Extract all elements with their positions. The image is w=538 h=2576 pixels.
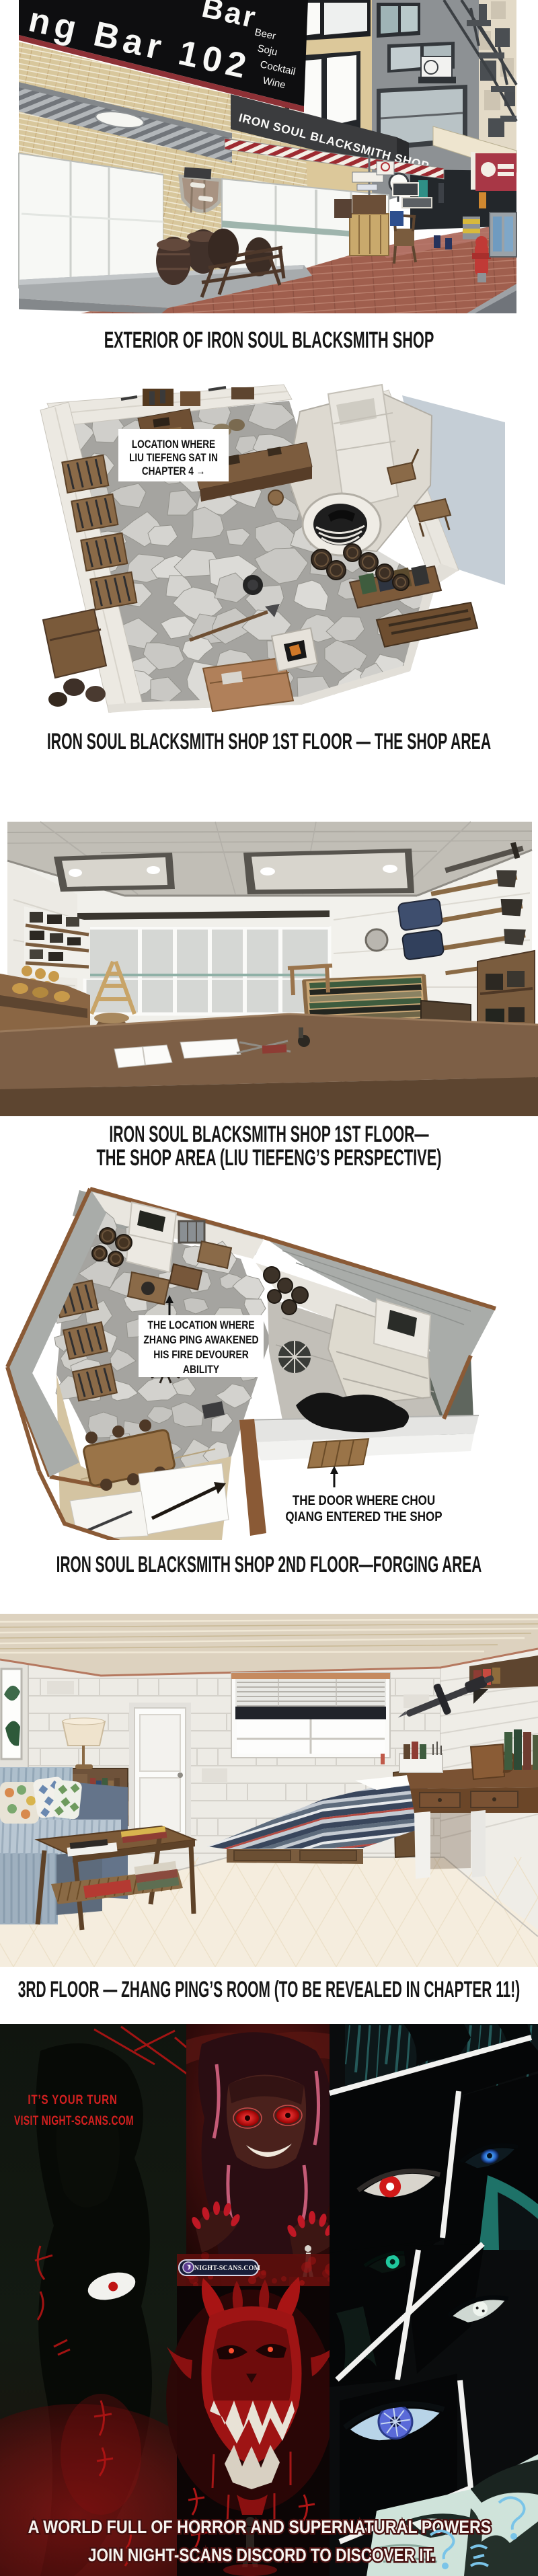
svg-text:VISIT NIGHT-SCANS.COM: VISIT NIGHT-SCANS.COM (14, 2113, 134, 2128)
svg-text:THE SHOP AREA (LIU TIEFENG’S P: THE SHOP AREA (LIU TIEFENG’S PERSPECTIVE… (96, 1145, 441, 1171)
svg-text:LIU TIEFENG SAT IN: LIU TIEFENG SAT IN (129, 452, 218, 465)
svg-text:THE LOCATION WHERE: THE LOCATION WHERE (147, 1319, 254, 1332)
svg-text:ABILITY: ABILITY (183, 1364, 220, 1376)
svg-text:IT’S YOUR TURN: IT’S YOUR TURN (28, 2092, 117, 2107)
svg-text:LOCATION WHERE: LOCATION WHERE (132, 438, 215, 451)
svg-text:IRON SOUL BLACKSMITH SHOP 1ST: IRON SOUL BLACKSMITH SHOP 1ST FLOOR— (109, 1123, 429, 1147)
svg-text:IRON SOUL BLACKSMITH SHOP 2ND: IRON SOUL BLACKSMITH SHOP 2ND FLOOR—FORG… (56, 1553, 482, 1577)
svg-text:QIANG ENTERED THE SHOP: QIANG ENTERED THE SHOP (285, 1509, 442, 1524)
svg-text:3RD FLOOR — ZHANG PING’S ROOM: 3RD FLOOR — ZHANG PING’S ROOM (TO BE REV… (18, 1978, 520, 2002)
svg-text:IRON SOUL BLACKSMITH SHOP 1ST: IRON SOUL BLACKSMITH SHOP 1ST FLOOR — TH… (47, 730, 491, 754)
svg-text:JOIN NIGHT-SCANS DISCORD TO DI: JOIN NIGHT-SCANS DISCORD TO DISCOVER IT. (88, 2545, 435, 2565)
svg-text:THE DOOR WHERE CHOU: THE DOOR WHERE CHOU (293, 1493, 435, 1508)
svg-text:ZHANG PING AWAKENED: ZHANG PING AWAKENED (143, 1334, 258, 1347)
svg-text:CHAPTER 4 →: CHAPTER 4 → (142, 465, 205, 478)
svg-text:NIGHT-SCANS.COM: NIGHT-SCANS.COM (194, 2265, 261, 2272)
svg-text:A WORLD FULL OF HORROR AND SUP: A WORLD FULL OF HORROR AND SUPERNATURAL … (28, 2517, 492, 2537)
svg-text:HIS FIRE DEVOURER: HIS FIRE DEVOURER (153, 1349, 249, 1362)
svg-text:EXTERIOR OF IRON SOUL BLACKSMI: EXTERIOR OF IRON SOUL BLACKSMITH SHOP (104, 329, 434, 353)
